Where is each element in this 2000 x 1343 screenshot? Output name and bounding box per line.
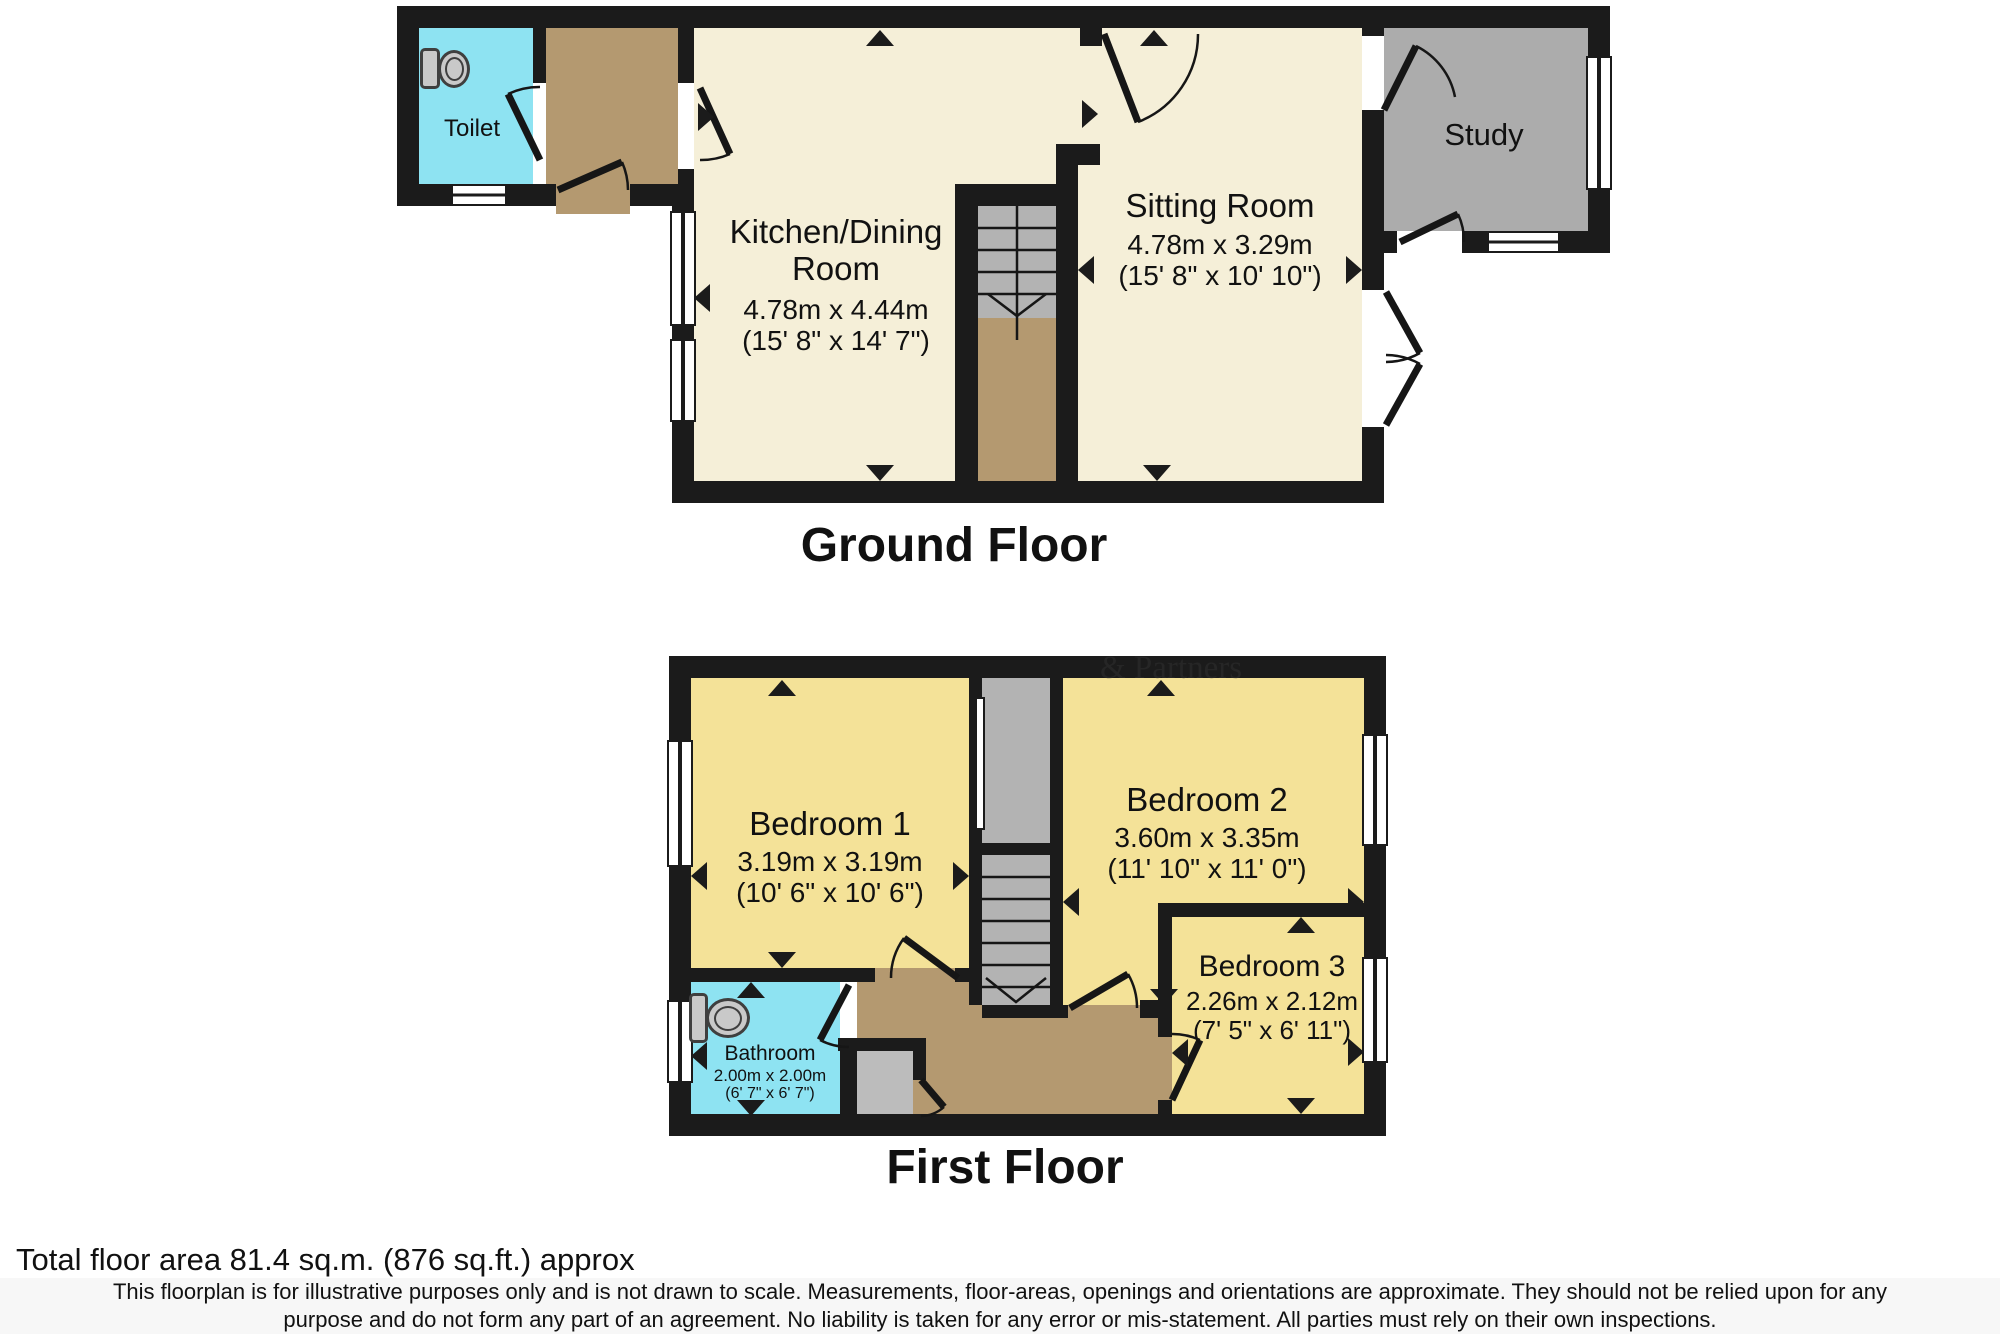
bathroom-imperial: (6' 7" x 6' 7")	[714, 1085, 826, 1103]
measure-triangle	[953, 862, 969, 890]
agency-watermark: & Partners	[1100, 650, 1242, 687]
kitchen-label: Kitchen/Dining Room 4.78m x 4.44m (15' 8…	[730, 214, 943, 357]
kitchen-imperial: (15' 8" x 14' 7")	[730, 325, 943, 356]
bedroom1-label: Bedroom 1 3.19m x 3.19m (10' 6" x 10' 6"…	[736, 806, 924, 909]
bathroom-metric: 2.00m x 2.00m	[714, 1066, 826, 1085]
bedroom2-name: Bedroom 2	[1107, 782, 1306, 819]
measure-triangle	[768, 680, 796, 696]
toilet-icon	[714, 1006, 742, 1031]
study-label: Study	[1444, 118, 1523, 153]
bedroom1-name: Bedroom 1	[736, 806, 924, 843]
measure-triangle	[1063, 888, 1079, 916]
measure-triangle	[1078, 256, 1094, 284]
measure-triangle	[1150, 989, 1178, 1005]
bedroom2-label: Bedroom 2 3.60m x 3.35m (11' 10" x 11' 0…	[1107, 782, 1306, 885]
toilet-label: Toilet	[444, 116, 500, 143]
sitting-room-name: Sitting Room	[1118, 188, 1321, 225]
measure-triangle	[737, 982, 765, 998]
toilet-icon	[420, 48, 440, 89]
measure-triangle	[1346, 256, 1362, 284]
first-floor-title: First Floor	[886, 1140, 1123, 1195]
kitchen-name: Kitchen/Dining	[730, 214, 943, 251]
sitting-room-imperial: (15' 8" x 10' 10")	[1118, 260, 1321, 291]
measure-triangle	[1348, 888, 1364, 916]
bedroom3-imperial: (7' 5" x 6' 11")	[1186, 1016, 1358, 1045]
ground-floor-title: Ground Floor	[801, 518, 1108, 573]
sitting-room-metric: 4.78m x 3.29m	[1118, 229, 1321, 260]
total-floor-area: Total floor area 81.4 sq.m. (876 sq.ft.)…	[16, 1242, 635, 1278]
bathroom-name: Bathroom	[714, 1042, 826, 1066]
bedroom2-metric: 3.60m x 3.35m	[1107, 822, 1306, 853]
door-swing-triangle	[1082, 100, 1098, 128]
bathroom-label: Bathroom 2.00m x 2.00m (6' 7" x 6' 7")	[714, 1042, 826, 1102]
bedroom1-metric: 3.19m x 3.19m	[736, 846, 924, 877]
disclaimer-line2: purpose and do not form any part of an a…	[0, 1306, 2000, 1334]
measure-triangle	[768, 952, 796, 968]
bedroom1-imperial: (10' 6" x 10' 6")	[736, 877, 924, 908]
bedroom2-imperial: (11' 10" x 11' 0")	[1107, 853, 1306, 884]
disclaimer: This floorplan is for illustrative purpo…	[0, 1278, 2000, 1334]
toilet-icon	[445, 57, 464, 81]
stair-treads-ff	[982, 877, 1050, 1002]
bedroom3-name: Bedroom 3	[1186, 950, 1358, 984]
sitting-room-label: Sitting Room 4.78m x 3.29m (15' 8" x 10'…	[1118, 188, 1321, 292]
stair-treads-gf	[978, 206, 1056, 340]
disclaimer-line1: This floorplan is for illustrative purpo…	[0, 1278, 2000, 1306]
door-swing-triangle	[698, 103, 714, 131]
measure-triangle	[1287, 1098, 1315, 1114]
measure-triangle	[866, 465, 894, 481]
bedroom3-metric: 2.26m x 2.12m	[1186, 987, 1358, 1016]
measure-triangle	[866, 30, 894, 46]
measure-triangle	[694, 284, 710, 312]
bedroom3-label: Bedroom 3 2.26m x 2.12m (7' 5" x 6' 11")	[1186, 950, 1358, 1045]
kitchen-metric: 4.78m x 4.44m	[730, 294, 943, 325]
measure-triangle	[962, 284, 978, 312]
measure-triangle	[691, 1042, 707, 1070]
kitchen-name2: Room	[730, 251, 943, 288]
floorplan-page: Toilet Kitchen/Dining Room 4.78m x 4.44m…	[0, 0, 2000, 1343]
measure-triangle	[1140, 30, 1168, 46]
stair-banister	[975, 697, 985, 830]
measure-triangle	[691, 862, 707, 890]
measure-triangle	[1287, 917, 1315, 933]
measure-triangle	[1143, 465, 1171, 481]
